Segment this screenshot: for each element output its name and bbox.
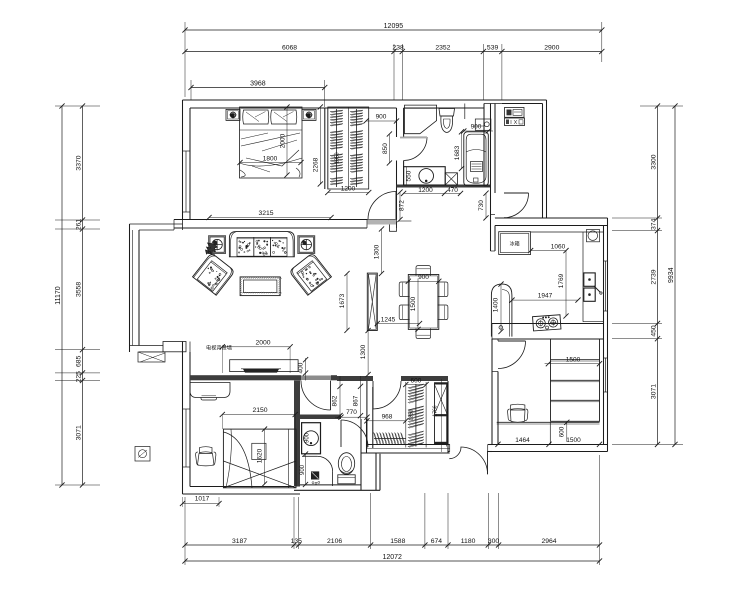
svg-text:450: 450 bbox=[650, 325, 657, 337]
svg-text:3300: 3300 bbox=[650, 154, 657, 169]
svg-text:1245: 1245 bbox=[381, 316, 396, 323]
svg-text:3215: 3215 bbox=[258, 210, 273, 217]
svg-text:135: 135 bbox=[291, 538, 303, 545]
svg-text:2268: 2268 bbox=[313, 157, 320, 172]
svg-text:2000: 2000 bbox=[255, 339, 270, 346]
svg-text:600: 600 bbox=[410, 378, 421, 385]
svg-text:685: 685 bbox=[75, 355, 82, 367]
svg-text:1950: 1950 bbox=[408, 409, 414, 420]
svg-text:1300: 1300 bbox=[373, 244, 380, 259]
svg-text:900: 900 bbox=[418, 274, 429, 281]
svg-text:862: 862 bbox=[331, 395, 338, 406]
svg-text:261: 261 bbox=[75, 219, 82, 231]
svg-text:550: 550 bbox=[406, 170, 413, 181]
svg-text:1017: 1017 bbox=[195, 496, 210, 503]
svg-text:电视背景墙: 电视背景墙 bbox=[206, 344, 232, 352]
svg-text:1620: 1620 bbox=[256, 448, 263, 463]
svg-text:900: 900 bbox=[300, 464, 306, 475]
svg-text:2150: 2150 bbox=[252, 407, 267, 414]
svg-text:1400: 1400 bbox=[492, 297, 499, 312]
svg-text:3968: 3968 bbox=[250, 80, 266, 87]
svg-text:1500: 1500 bbox=[566, 356, 581, 363]
svg-text:2000: 2000 bbox=[279, 133, 286, 148]
svg-text:1300: 1300 bbox=[360, 344, 367, 359]
svg-text:1947: 1947 bbox=[538, 293, 553, 300]
svg-text:1464: 1464 bbox=[515, 437, 530, 444]
svg-text:374: 374 bbox=[650, 218, 657, 230]
svg-text:2106: 2106 bbox=[327, 538, 342, 545]
svg-text:770: 770 bbox=[346, 409, 357, 416]
svg-text:3071: 3071 bbox=[650, 384, 657, 399]
svg-text:867: 867 bbox=[352, 395, 359, 406]
svg-text:900: 900 bbox=[471, 124, 482, 131]
svg-text:900: 900 bbox=[304, 432, 310, 443]
svg-text:3071: 3071 bbox=[75, 425, 82, 440]
svg-text:1588: 1588 bbox=[390, 538, 405, 545]
svg-text:968: 968 bbox=[382, 413, 393, 420]
svg-text:539: 539 bbox=[487, 44, 499, 51]
svg-text:6068: 6068 bbox=[282, 44, 297, 51]
svg-text:12095: 12095 bbox=[384, 23, 404, 30]
svg-text:850: 850 bbox=[382, 143, 389, 154]
svg-text:1673: 1673 bbox=[339, 293, 346, 308]
svg-text:470: 470 bbox=[447, 187, 458, 194]
svg-text:1683: 1683 bbox=[454, 145, 461, 160]
svg-text:872: 872 bbox=[398, 200, 405, 211]
svg-text:1950: 1950 bbox=[335, 152, 341, 163]
svg-text:1180: 1180 bbox=[461, 538, 476, 545]
svg-text:600: 600 bbox=[559, 426, 566, 437]
svg-text:9934: 9934 bbox=[668, 267, 675, 283]
svg-text:300: 300 bbox=[488, 538, 500, 545]
svg-text:3370: 3370 bbox=[75, 155, 82, 170]
svg-text:冰箱: 冰箱 bbox=[510, 241, 520, 248]
svg-text:1800: 1800 bbox=[263, 156, 278, 163]
svg-text:2964: 2964 bbox=[541, 538, 556, 545]
svg-text:1766: 1766 bbox=[432, 405, 438, 416]
svg-text:1500: 1500 bbox=[410, 296, 417, 311]
svg-text:3558: 3558 bbox=[75, 282, 82, 297]
svg-text:11170: 11170 bbox=[55, 286, 62, 305]
svg-text:12072: 12072 bbox=[382, 554, 402, 561]
svg-text:1200: 1200 bbox=[341, 185, 356, 192]
svg-text:1500: 1500 bbox=[566, 437, 581, 444]
svg-text:1060: 1060 bbox=[551, 243, 566, 250]
svg-text:1200: 1200 bbox=[418, 187, 433, 194]
svg-text:2352: 2352 bbox=[435, 44, 450, 51]
svg-text:900: 900 bbox=[376, 113, 387, 120]
svg-text:3187: 3187 bbox=[232, 538, 247, 545]
svg-text:2900: 2900 bbox=[544, 44, 559, 51]
svg-text:1769: 1769 bbox=[558, 273, 565, 288]
svg-text:2739: 2739 bbox=[650, 269, 657, 284]
svg-text:674: 674 bbox=[431, 538, 443, 545]
svg-text:730: 730 bbox=[478, 200, 485, 211]
svg-text:400: 400 bbox=[298, 362, 305, 373]
